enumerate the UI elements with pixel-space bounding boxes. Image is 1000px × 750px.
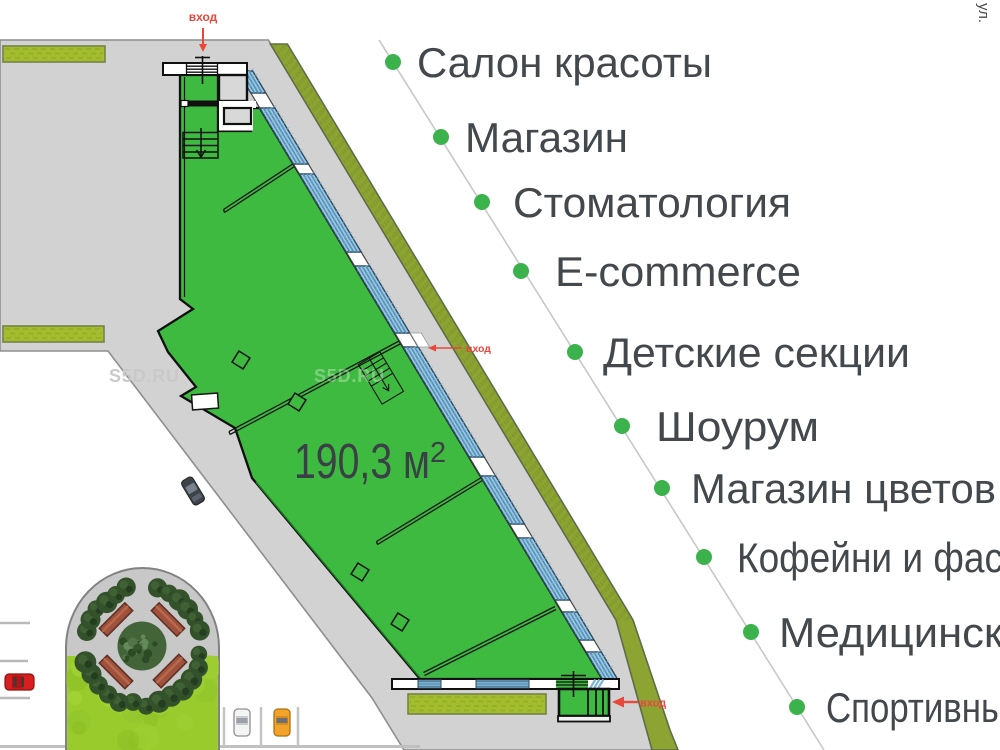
- svg-text:Детские секции: Детские секции: [603, 329, 910, 376]
- svg-text:Салон красоты: Салон красоты: [417, 39, 712, 86]
- svg-text:Стоматология: Стоматология: [513, 179, 791, 226]
- svg-text:вход: вход: [466, 343, 491, 355]
- svg-text:S5D.RU: S5D.RU: [314, 366, 385, 386]
- svg-text:вход: вход: [189, 10, 218, 24]
- svg-text:ул.: ул.: [975, 3, 992, 23]
- svg-text:вход: вход: [640, 698, 666, 710]
- svg-text:2: 2: [430, 437, 446, 469]
- svg-text:E-commerce: E-commerce: [555, 248, 801, 295]
- svg-text:Медицинск: Медицинск: [779, 609, 1000, 656]
- svg-text:Магазин цветов: Магазин цветов: [691, 465, 996, 512]
- svg-text:Спортивны: Спортивны: [826, 684, 1000, 731]
- svg-text:190,3 м: 190,3 м: [294, 435, 430, 489]
- svg-text:Магазин: Магазин: [465, 114, 628, 161]
- svg-text:Кофейни и фас: Кофейни и фас: [737, 534, 1000, 581]
- svg-text:Шоурум: Шоурум: [656, 403, 819, 450]
- svg-text:S5D.RU: S5D.RU: [109, 366, 180, 386]
